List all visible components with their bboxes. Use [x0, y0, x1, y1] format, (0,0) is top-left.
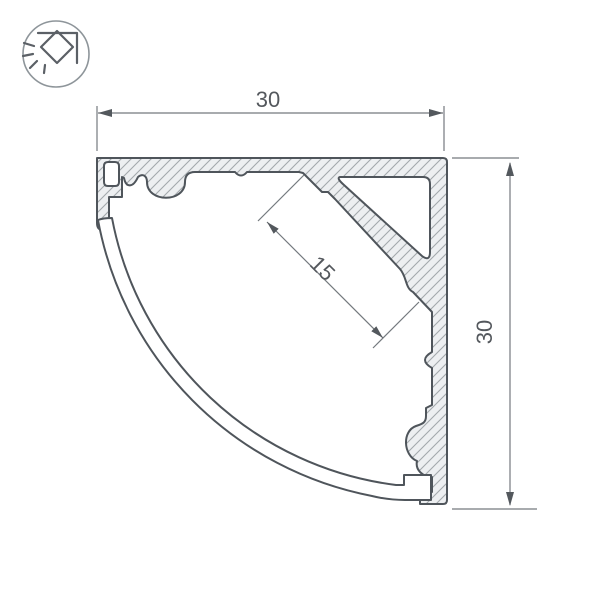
light-ray [44, 65, 45, 73]
technical-drawing: 30 30 15 [0, 0, 600, 600]
logo-badge [23, 21, 89, 87]
arrowhead [98, 109, 112, 117]
technical-drawing-canvas: 30 30 15 [0, 0, 600, 600]
dimension-top-width-label: 30 [256, 87, 280, 112]
extension-line [258, 175, 304, 221]
extension-line [373, 302, 419, 348]
dimension-led-shelf-label: 15 [305, 251, 340, 286]
dimension-top-width [97, 106, 444, 151]
arrowhead [506, 162, 514, 176]
diffuser-lens [98, 218, 431, 500]
dimension-right-height-label: 30 [472, 320, 497, 344]
arrowhead [429, 109, 443, 117]
profile-cross-section [97, 158, 447, 504]
arrowhead [506, 492, 514, 506]
